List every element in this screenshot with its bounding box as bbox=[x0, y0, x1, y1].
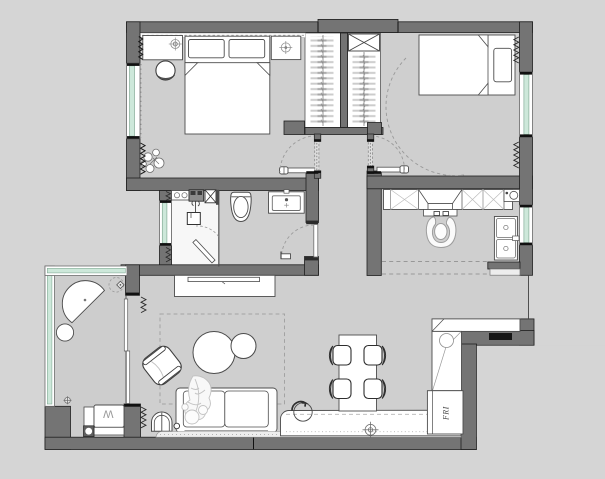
svg-text:W: W bbox=[103, 408, 114, 420]
svg-text:FRI: FRI bbox=[442, 406, 451, 421]
